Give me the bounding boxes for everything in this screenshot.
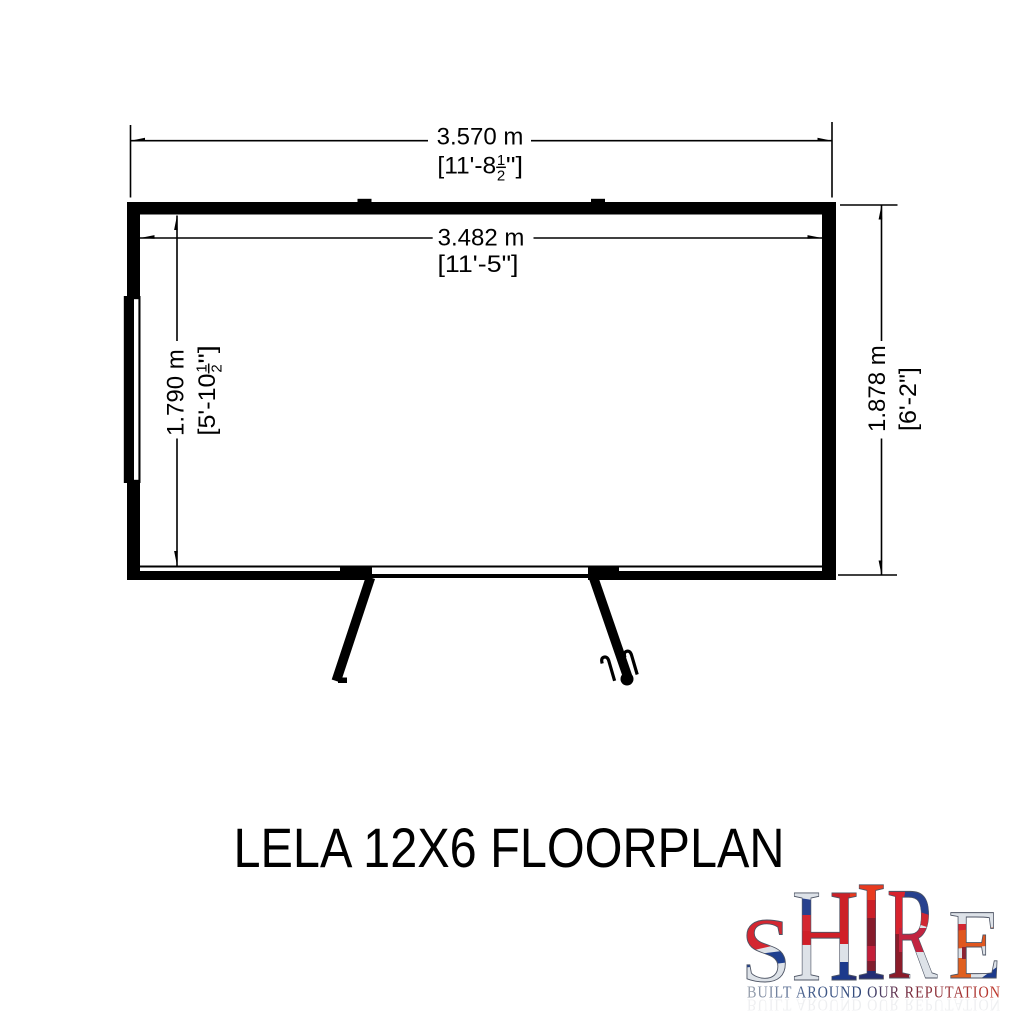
svg-text:LELA 12X6 FLOORPLAN: LELA 12X6 FLOORPLAN xyxy=(234,816,785,879)
svg-text:BUILT AROUND OUR REPUTATION: BUILT AROUND OUR REPUTATION xyxy=(747,996,1001,1015)
svg-text:1.790 m: 1.790 m xyxy=(163,349,190,436)
svg-text:[11'-5"]: [11'-5"] xyxy=(438,251,519,278)
svg-text:2: 2 xyxy=(497,167,505,184)
svg-text:1.878 m: 1.878 m xyxy=(864,345,891,432)
svg-text:2: 2 xyxy=(209,364,226,372)
svg-text:"]: "] xyxy=(506,153,523,180)
svg-text:3.482 m: 3.482 m xyxy=(438,225,525,252)
svg-text:[6'-2"]: [6'-2"] xyxy=(895,367,922,431)
svg-text:"]: "] xyxy=(194,345,221,363)
svg-text:3.570 m: 3.570 m xyxy=(437,123,524,150)
svg-text:[11'-8: [11'-8 xyxy=(437,153,496,180)
svg-text:[5'-10: [5'-10 xyxy=(194,374,221,436)
